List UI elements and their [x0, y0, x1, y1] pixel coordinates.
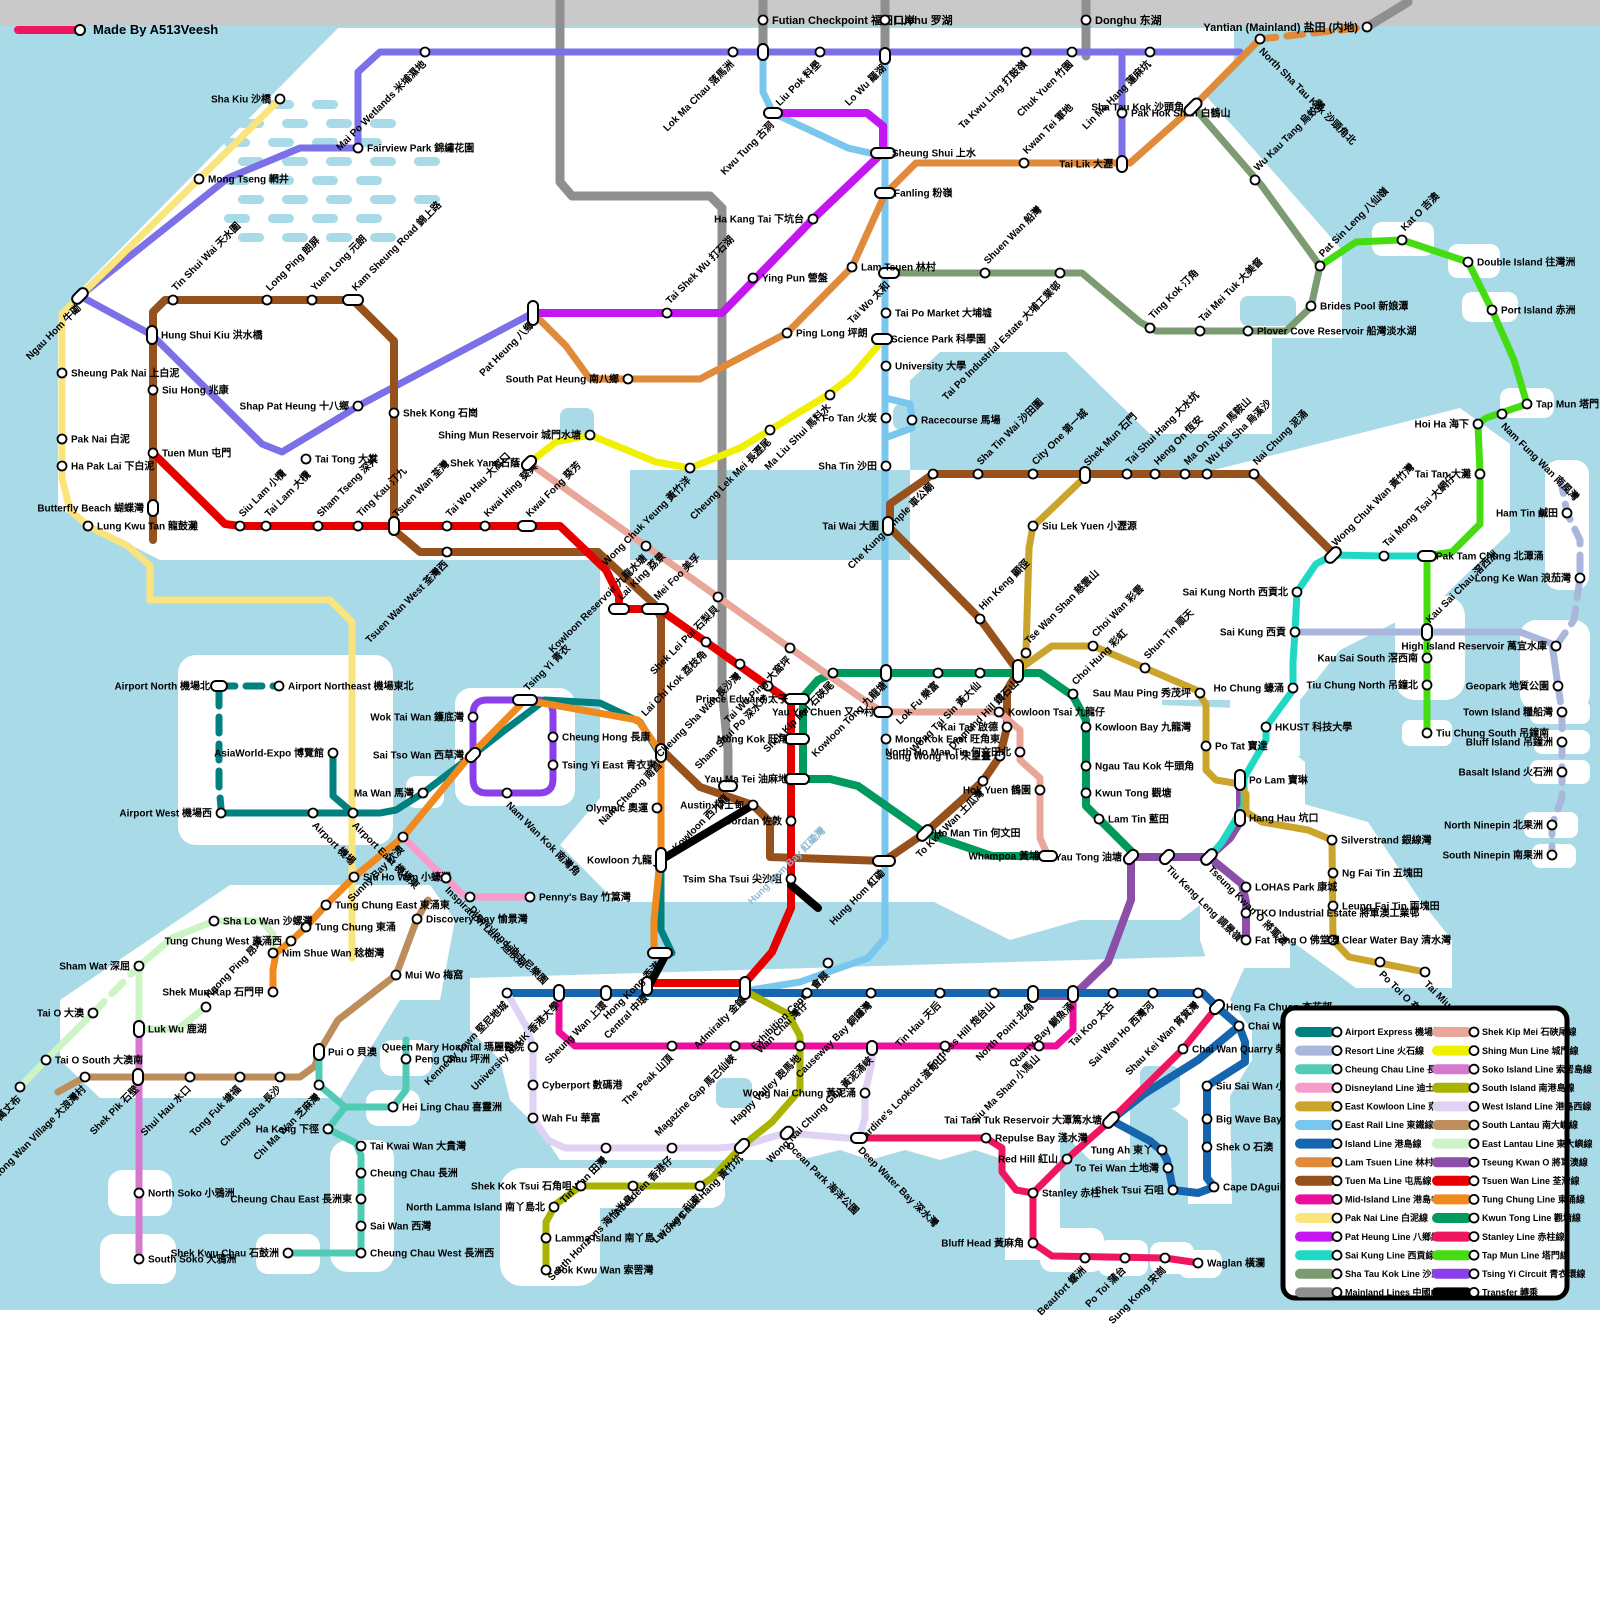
station-label: Bluff Head 黃麻角 — [941, 1237, 1024, 1250]
station-dot — [829, 669, 838, 678]
station-label: Fat Tong O 佛堂澳 — [1255, 934, 1341, 947]
station-dot — [284, 1249, 293, 1258]
station-dot — [882, 462, 891, 471]
legend-item-tseung-kwan-o-r: Tseung Kwan O 將軍澳線 — [1432, 1156, 1588, 1167]
station-dot — [1194, 989, 1203, 998]
station-dot — [1196, 689, 1205, 698]
station-yau-ma-tei: Yau Ma Tei 油麻地 — [704, 773, 809, 786]
station-dot — [287, 937, 296, 946]
station-cyberport: Cyberport 數碼港 — [529, 1079, 624, 1092]
station-dot — [1210, 1183, 1219, 1192]
station-dot — [1029, 522, 1038, 531]
station-dot — [58, 435, 67, 444]
station-shap-pat-heung: Shap Pat Heung 十八鄉 — [240, 400, 363, 413]
legend-station-icon — [1333, 1028, 1342, 1037]
legend-label: Shek Kip Mei 石硤尾線 — [1482, 1026, 1577, 1037]
station-dot — [549, 733, 558, 742]
station-pill — [785, 774, 809, 784]
station-label: Tiu Chung North 吊鐘北 — [1307, 679, 1418, 692]
station-label: Whampoa 黃埔 — [968, 850, 1039, 863]
station-dot — [357, 1142, 366, 1151]
station-label: High Island Reservoir 萬宜水庫 — [1401, 640, 1547, 653]
station-pill — [881, 665, 891, 681]
station-dot — [58, 462, 67, 471]
legend-line-swatch — [1295, 1120, 1335, 1130]
station-dot — [1020, 159, 1029, 168]
station-label: Jordan 佐敦 — [726, 815, 783, 828]
station-dot — [1063, 1155, 1072, 1164]
legend-item-west-island-r: West Island Line 港島西線 — [1432, 1101, 1591, 1112]
station-label: Austin 柯士甸 — [680, 799, 744, 812]
station-label: Port Island 赤洲 — [1501, 304, 1575, 317]
legend-item-tap-mun-r: Tap Mun Line 塔門線 — [1432, 1249, 1569, 1260]
station-dot — [399, 833, 408, 842]
station-dot — [936, 989, 945, 998]
station-dot — [390, 409, 399, 418]
legend-line-swatch — [1295, 1101, 1335, 1111]
station-pill — [314, 1044, 324, 1060]
fishpond-dash — [312, 176, 338, 185]
station-dot — [529, 1081, 538, 1090]
legend-station-icon — [1470, 1176, 1479, 1185]
station-dot — [1423, 654, 1432, 663]
fishpond-dash — [312, 214, 338, 223]
station-dot — [550, 1203, 559, 1212]
station-dot — [443, 522, 452, 531]
metro-map: West Kowloon 西九龍Ngau Hom 牛磡Fairview Park… — [0, 0, 1600, 1600]
station-dot — [443, 548, 452, 557]
station-tung-chung-west: Tung Chung West 東涌西 — [165, 935, 296, 948]
legend-item-tsing-yi-circuit-r: Tsing Yi Circuit 青衣環線 — [1432, 1268, 1585, 1279]
station-dot — [1328, 836, 1337, 845]
legend-item-island: Island Line 港島線 — [1295, 1138, 1422, 1149]
station-pill — [656, 848, 666, 872]
legend-station-icon — [1333, 1269, 1342, 1278]
legend-item-east-lantau-r: East Lantau Line 東大嶼線 — [1432, 1138, 1593, 1149]
station-dot — [1194, 1259, 1203, 1268]
station-dot — [1498, 410, 1507, 419]
station-label: Airport North 機場北 — [114, 680, 210, 693]
station-label: Shek Kok Tsui 石角咀 — [471, 1180, 572, 1193]
fishpond-dash — [370, 195, 396, 204]
station-fat-tong-o: Fat Tong O 佛堂澳 — [1242, 934, 1341, 947]
island-26 — [1040, 1228, 1104, 1272]
station-label: Ho Chung 蠔涌 — [1213, 682, 1284, 695]
station-pill — [1039, 851, 1057, 861]
legend-label: Lam Tsuen Line 林村線 — [1345, 1156, 1442, 1167]
station-ha-pak-lai: Ha Pak Lai 下白泥 — [58, 460, 155, 473]
station-dot — [1250, 470, 1259, 479]
station-pill — [758, 44, 768, 60]
station-label: Double Island 往灣洲 — [1477, 256, 1575, 269]
station-dot — [315, 1081, 324, 1090]
station-label: Tai Tam Tuk Reservoir 大潭篤水塘 — [944, 1114, 1102, 1127]
station-dot — [766, 426, 775, 435]
legend-line-swatch — [1432, 1083, 1472, 1093]
station-to-tei-wan: To Tei Wan 土地灣 — [1075, 1162, 1173, 1175]
station-tung-chung: Tung Chung 東涌 — [302, 921, 396, 934]
legend-line-swatch — [1295, 1269, 1335, 1279]
legend-label: Stanley Line 赤柱線 — [1482, 1231, 1565, 1242]
station-label: South Pat Heung 南八鄉 — [506, 373, 619, 386]
legend-line-swatch — [1432, 1194, 1472, 1204]
legend-item-airport-express: Airport Express 機場快線 — [1295, 1026, 1451, 1037]
station-pill — [1422, 624, 1432, 640]
station-label: Hok Yuen 鶴園 — [963, 784, 1031, 797]
station-kwun-tong: Kwun Tong 觀塘 — [1082, 787, 1172, 800]
station-dot — [1149, 989, 1158, 998]
legend-item-pak-nai: Pak Nai Line 白泥線 — [1295, 1212, 1428, 1223]
station-south-ninepin: South Ninepin 南果洲 — [1442, 849, 1556, 862]
station-label: Tai Wai 大圍 — [822, 520, 879, 533]
station-dot — [357, 1222, 366, 1231]
station-tai-o-south: Tai O South 大澳南 — [42, 1054, 144, 1067]
station-label: Shek Tsui 石咀 — [1095, 1185, 1164, 1197]
station-sok-kwu-wan: Sok Kwu Wan 索罟灣 — [542, 1264, 654, 1277]
station-dot — [1548, 851, 1557, 860]
station-south-pat-heung: South Pat Heung 南八鄉 — [506, 373, 633, 386]
station-dot — [1293, 588, 1302, 597]
station-dot — [577, 1182, 586, 1191]
legend-label: Island Line 港島線 — [1345, 1138, 1422, 1149]
station-dot — [586, 431, 595, 440]
station-peng-chau: Peng Chau 坪洲 — [402, 1053, 491, 1066]
station-dot — [929, 470, 938, 479]
station-dot — [1242, 936, 1251, 945]
station-siu-ho-wan: Siu Ho Wan 小蠔灣 — [350, 871, 451, 884]
legend-station-icon — [1470, 1232, 1479, 1241]
station-repulse-bay: Repulse Bay 淺水灣 — [982, 1132, 1088, 1145]
legend-station-icon — [1470, 1121, 1479, 1130]
station-label: Sheung Pak Nai 上白泥 — [71, 367, 179, 380]
legend-label: Tap Mun Line 塔門線 — [1482, 1249, 1569, 1260]
station-dot — [357, 1249, 366, 1258]
station-dot — [1082, 789, 1091, 798]
station-dot — [1558, 768, 1567, 777]
station-label: Tai Lik 大瀝 — [1059, 158, 1114, 171]
station-airport-northeast: Airport Northeast 機場東北 — [275, 680, 414, 693]
station-label: Olympic 奧運 — [586, 802, 648, 815]
station-label: HKUST 科技大學 — [1275, 721, 1352, 734]
legend-station-icon — [1333, 1065, 1342, 1074]
station-dot — [1029, 470, 1038, 479]
station-dot — [976, 669, 985, 678]
station-dot — [466, 893, 475, 902]
station-label: Shing Mun Reservoir 城門水塘 — [438, 429, 581, 442]
metro-map-page: West Kowloon 西九龍Ngau Hom 牛磡Fairview Park… — [0, 0, 1600, 1600]
station-dot — [1022, 649, 1031, 658]
legend-station-icon — [1333, 1232, 1342, 1241]
station-dot — [1003, 723, 1012, 732]
station-brides-pool: Brides Pool 新娘潭 — [1307, 300, 1409, 313]
station-label: Wok Tai Wan 鑊底灣 — [370, 711, 464, 724]
station-dot — [81, 1073, 90, 1082]
station-dot — [389, 1103, 398, 1112]
station-dot — [1203, 470, 1212, 479]
station-dot — [1121, 1254, 1130, 1263]
station-label: Shek O 石澳 — [1216, 1141, 1274, 1154]
station-dot — [329, 749, 338, 758]
station-dot — [696, 1182, 705, 1191]
station-label: Tai Po Market 大埔墟 — [895, 307, 992, 320]
station-dot — [1558, 738, 1567, 747]
station-label: Racecourse 馬場 — [921, 414, 1000, 427]
legend-station-icon — [1333, 1121, 1342, 1130]
legend-line-swatch — [1432, 1176, 1472, 1186]
station-label: Luohu 罗湖 — [894, 13, 953, 27]
legend-line-swatch — [1295, 1027, 1335, 1037]
station-label: Sha Lo Wan 沙螺灣 — [223, 915, 313, 928]
station-label: Airport Northeast 機場東北 — [288, 680, 414, 693]
station-label: Clear Water Bay 清水灣 — [1342, 934, 1451, 947]
station-dot — [861, 1089, 870, 1098]
station-dot — [974, 470, 983, 479]
station-dot — [186, 1073, 195, 1082]
station-dot — [786, 644, 795, 653]
station-label: Sheung Shui 上水 — [892, 147, 977, 160]
station-label: Yantian (Mainland) 盐田 (内地) — [1203, 20, 1358, 34]
station-pill — [764, 108, 782, 118]
station-dot — [503, 989, 512, 998]
legend-item-east-rail: East Rail Line 東鐵線 — [1295, 1119, 1434, 1130]
station-dot — [749, 801, 758, 810]
legend-station-icon — [1333, 1083, 1342, 1092]
station-dot — [263, 296, 272, 305]
legend-label: East Lantau Line 東大嶼線 — [1482, 1138, 1593, 1149]
station-dot — [1169, 1186, 1178, 1195]
station-dot — [276, 1073, 285, 1082]
station-dot — [149, 386, 158, 395]
station-label: Ma Wan 馬灣 — [354, 787, 414, 800]
legend-label: Tsing Yi Circuit 青衣環線 — [1482, 1268, 1585, 1279]
legend-station-icon — [1333, 1214, 1342, 1223]
station-label: Discovery Bay 愉景灣 — [426, 913, 528, 926]
legend-item-tung-chung-r: Tung Chung Line 東涌線 — [1432, 1194, 1585, 1205]
fishpond-dash — [326, 157, 352, 166]
station-dot — [990, 989, 999, 998]
station-label: Sai Tso Wan 西草灣 — [373, 749, 464, 762]
station-label: Butterfly Beach 蝴蝶灣 — [37, 502, 144, 515]
station-dot — [759, 16, 768, 25]
station-pill — [867, 1041, 877, 1055]
station-pill — [883, 517, 893, 535]
legend-item-shing-mun-r: Shing Mun Line 城門線 — [1432, 1045, 1579, 1056]
station-label: Tung Ah 東丫 — [1091, 1144, 1153, 1157]
station-dot — [357, 1169, 366, 1178]
station-lung-kwu-tan: Lung Kwu Tan 龍鼓灘 — [84, 520, 198, 533]
station-tsing-yi-east: Tsing Yi East 青衣東 — [549, 759, 657, 772]
station-label: Ping Long 坪朗 — [796, 327, 868, 340]
station-dot — [421, 48, 430, 57]
legend-line-swatch — [1295, 1287, 1335, 1297]
station-label: Stanley 赤柱 — [1042, 1187, 1100, 1200]
station-label: Yau Yat Chuen 又一村 — [772, 706, 874, 719]
title-station-sample — [75, 25, 85, 35]
station-dot — [826, 391, 835, 400]
station-dot — [1476, 470, 1485, 479]
station-label: Sha Tin 沙田 — [818, 461, 877, 473]
station-cheung-chau-west: Cheung Chau West 長洲西 — [357, 1248, 495, 1260]
station-label: Ying Pun 營盤 — [762, 272, 829, 285]
legend-line-swatch — [1295, 1194, 1335, 1204]
station-label: Hung Shui Kiu 洪水橋 — [161, 329, 264, 342]
station-label: North Lamma Island 南丫島北 — [406, 1201, 545, 1214]
legend-line-swatch — [1432, 1157, 1472, 1167]
station-dot — [934, 669, 943, 678]
station-pill — [875, 188, 895, 198]
station-kowloon-bay: Kowloon Bay 九龍灣 — [1082, 721, 1192, 734]
station-label: Po Tat 寶達 — [1215, 740, 1268, 753]
station-discovery-bay: Discovery Bay 愉景灣 — [413, 913, 528, 926]
station-basalt-island: Basalt Island 火石洲 — [1459, 767, 1567, 779]
station-dot — [1552, 642, 1561, 651]
station-label: Airport West 機場西 — [119, 807, 212, 820]
legend-item-mid-island: Mid-Island Line 港島中線 — [1295, 1194, 1449, 1205]
station-dot — [1056, 269, 1065, 278]
station-fanling: Fanling 粉嶺 — [875, 187, 953, 200]
station-label: Tsing Yi East 青衣東 — [562, 759, 656, 772]
station-dot — [803, 989, 812, 998]
station-dot — [419, 789, 428, 798]
station-pill — [1068, 986, 1078, 1002]
station-dot — [16, 1083, 25, 1092]
station-dot — [1256, 35, 1265, 44]
station-dot — [1095, 815, 1104, 824]
station-nim-shue-wan: Nim Shue Wan 稔樹灣 — [269, 947, 385, 960]
station-label: Kwun Tong 觀塘 — [1095, 787, 1171, 800]
legend-line-swatch — [1432, 1269, 1472, 1279]
station-label: LOHAS Park 康城 — [1255, 881, 1337, 894]
station-dot — [629, 1182, 638, 1191]
station-dot — [908, 416, 917, 425]
station-high-island-reservoir: High Island Reservoir 萬宜水庫 — [1401, 640, 1560, 653]
legend-item-soko-island-r: Soko Island Line 索罟島線 — [1432, 1063, 1592, 1074]
fishpond-dash — [268, 138, 294, 147]
legend-item-transfer-r: Transfer 轉乘 — [1432, 1287, 1539, 1298]
legend-label: South Island 南港島線 — [1482, 1082, 1575, 1093]
legend-item-pat-heung: Pat Heung Line 八鄉線 — [1295, 1231, 1440, 1242]
station-label: Sau Mau Ping 秀茂坪 — [1093, 687, 1191, 700]
station-dot — [1151, 470, 1160, 479]
station-label: Tuen Mun 屯門 — [162, 447, 231, 460]
legend-station-icon — [1470, 1158, 1479, 1167]
station-pill — [513, 695, 537, 705]
legend-label: Resort Line 火石線 — [1345, 1045, 1424, 1056]
map-title: Made By A513Veesh — [93, 22, 218, 37]
station-label: Tung Chung East 東涌東 — [335, 899, 450, 912]
station-dot — [549, 761, 558, 770]
legend-station-icon — [1470, 1195, 1479, 1204]
station-dot — [1376, 958, 1385, 967]
legend-label: Tseung Kwan O 將軍澳線 — [1482, 1156, 1588, 1167]
station-label: Yau Ma Tei 油麻地 — [704, 773, 788, 786]
station-dot — [309, 809, 318, 818]
station-label: North Soko 小鴉洲 — [148, 1187, 235, 1200]
station-dot — [602, 1144, 611, 1153]
station-dot — [882, 309, 891, 318]
station-tung-chung-east: Tung Chung East 東涌東 — [322, 899, 450, 912]
station-whampoa: Whampoa 黃埔 — [968, 850, 1057, 863]
station-dot — [1329, 869, 1338, 878]
legend-label: Transfer 轉乘 — [1482, 1287, 1539, 1298]
legend-station-icon — [1470, 1251, 1479, 1260]
fishpond-dash — [282, 157, 308, 166]
station-label: Kowloon Bay 九龍灣 — [1095, 721, 1191, 734]
station-sheung-shui: Sheung Shui 上水 — [871, 147, 977, 160]
legend-line-swatch — [1432, 1250, 1472, 1260]
station-label: North Ninepin 北果洲 — [1444, 819, 1543, 832]
station-label: Sai Kung North 西貢北 — [1182, 586, 1288, 599]
station-dot — [275, 682, 284, 691]
station-label: Siu Hong 兆康 — [162, 384, 230, 397]
station-label: AsiaWorld-Expo 博覽館 — [214, 747, 324, 760]
station-dot — [1488, 306, 1497, 315]
station-dot — [979, 777, 988, 786]
station-label: Wah Fu 華富 — [542, 1112, 601, 1125]
station-hei-ling-chau: Hei Ling Chau 喜靈洲 — [389, 1101, 503, 1114]
station-dot — [42, 1056, 51, 1065]
legend-line-swatch — [1295, 1213, 1335, 1223]
station-label: Fanling 粉嶺 — [894, 187, 953, 200]
fishpond-dash — [238, 195, 264, 204]
station-dot — [469, 713, 478, 722]
legend-label: Pat Heung Line 八鄉線 — [1345, 1231, 1440, 1242]
station-dot — [882, 414, 891, 423]
station-label: Geopark 地質公園 — [1466, 680, 1549, 693]
station-pill — [601, 986, 611, 1000]
station-sai-kung-north: Sai Kung North 西貢北 — [1182, 586, 1301, 599]
station-label: Penny's Bay 竹篙灣 — [539, 891, 631, 904]
station-tai-po-market: Tai Po Market 大埔墟 — [882, 307, 993, 320]
legend-line-swatch — [1295, 1157, 1335, 1167]
station-pill — [1235, 810, 1245, 826]
station-pill — [148, 500, 158, 516]
station-label: Long Ke Wan 浪茄灣 — [1475, 572, 1571, 585]
station-cheung-chau: Cheung Chau 長洲 — [357, 1168, 458, 1180]
station-label: Red Hill 紅山 — [998, 1153, 1058, 1166]
station-label: Wong Nai Chung 黃泥涌 — [743, 1087, 856, 1100]
station-label: Ha Kang Tai 下坑台 — [714, 213, 804, 226]
station-label: Cheung Hong 長康 — [562, 731, 651, 744]
station-dot — [1082, 723, 1091, 732]
station-clear-water-bay: Clear Water Bay 清水灣 — [1329, 934, 1452, 947]
station-pill — [1028, 986, 1038, 1002]
station-label: Ha Pak Lai 下白泥 — [71, 460, 154, 473]
station-dot — [1474, 420, 1483, 429]
station-science-park: Science Park 科學園 — [872, 333, 986, 346]
station-dot — [529, 1114, 538, 1123]
legend-label: Tsuen Wan Line 荃灣線 — [1482, 1175, 1580, 1186]
station-label: Repulse Bay 淺水灣 — [995, 1132, 1088, 1145]
station-north-soko: North Soko 小鴉洲 — [135, 1187, 235, 1200]
station-label: Ham Tin 鹹田 — [1496, 507, 1558, 520]
station-pill — [785, 694, 809, 704]
legend-station-icon — [1333, 1251, 1342, 1260]
station-dot — [1558, 708, 1567, 717]
station-label: Queen Mary Hospital 瑪麗醫院 — [382, 1041, 524, 1054]
legend-station-icon — [1333, 1288, 1342, 1297]
station-shek-kong: Shek Kong 石崗 — [390, 407, 479, 420]
station-dot — [1363, 23, 1372, 32]
station-dot — [322, 901, 331, 910]
station-label: Sha Kiu 沙橋 — [211, 93, 272, 106]
station-dot — [302, 455, 311, 464]
legend-line-swatch — [1295, 1064, 1335, 1074]
station-label: Lung Kwu Tan 龍鼓灘 — [97, 520, 198, 533]
station-shek-kok-tsui: Shek Kok Tsui 石角咀 — [471, 1180, 585, 1193]
station-label: Hoi Ha 海下 — [1415, 418, 1469, 431]
mainland-station-futian-checkpoint: Futian Checkpoint 福田口岸 — [759, 13, 916, 27]
